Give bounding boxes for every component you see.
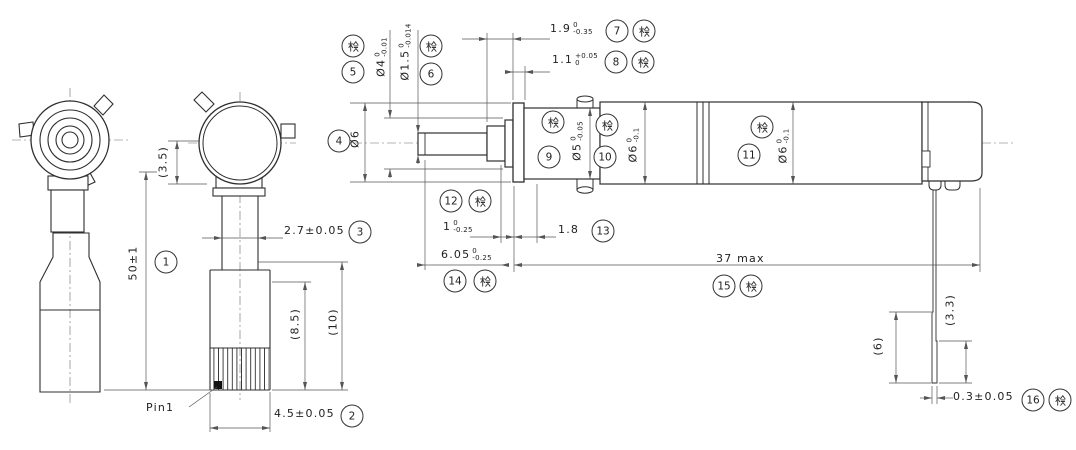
dim-5-tolerance: 0-0.01: [375, 37, 388, 57]
inspection-kanji-icon: [474, 195, 486, 207]
inspection-balloon-11: [751, 116, 774, 139]
balloon-2: 2: [341, 405, 364, 428]
balloon-12: 12: [440, 190, 463, 213]
front-view: [19, 95, 113, 392]
bottom-pin: [577, 179, 593, 193]
dim-10-value: Ø6: [627, 144, 640, 162]
inspection-kanji-icon: [638, 25, 650, 37]
inspection-kanji-icon: [756, 121, 768, 133]
dim-10-text: Ø6 0-0.1: [627, 128, 640, 163]
dim-11-tolerance: 0-0.1: [777, 129, 790, 144]
dim-6-tol-lower: -0.014: [405, 23, 412, 47]
dim-8-value: 1.1: [552, 53, 573, 66]
dim-6-tolerance: 0-0.014: [399, 23, 412, 47]
lead-pin: [932, 190, 937, 383]
inspection-balloon-5: [342, 35, 365, 58]
ref-10-text: (10): [327, 308, 340, 335]
dim-14-text: 6.05 0-0.25: [441, 248, 492, 261]
balloon-14: 14: [444, 270, 467, 293]
dim-14-value: 6.05: [441, 248, 470, 261]
balloon-8: 8: [605, 51, 628, 74]
balloon-5: 5: [342, 61, 365, 84]
collar-1: [487, 126, 505, 161]
dim-3-text: 2.7±0.05: [284, 224, 345, 237]
front-stem: [51, 190, 84, 232]
balloon-4: 4: [328, 130, 351, 153]
dim-12-tol-lower: -0.25: [453, 227, 473, 234]
side-tab-right: [281, 124, 295, 138]
dim-7-tolerance: 0-0.35: [573, 22, 593, 35]
engineering-drawing: 1.9 0-0.35 1.1 +0.050 1 0-0.25 1.8 6.05 …: [0, 0, 1076, 450]
dim-5-value: Ø4: [375, 59, 388, 77]
body-section-b: [600, 102, 922, 184]
side-view: [194, 92, 295, 390]
ref-3-3-text: (3.3): [944, 294, 957, 326]
dim-14-tol-lower: -0.25: [472, 255, 492, 262]
dim-2-text: 4.5±0.05: [274, 407, 335, 420]
balloon-7: 7: [606, 20, 629, 43]
ref-10-value: (10): [327, 308, 340, 335]
collar-2: [505, 120, 513, 167]
dim-12-tolerance: 0-0.25: [453, 220, 473, 233]
dim-10-tol-lower: -0.1: [633, 128, 640, 143]
shaft: [418, 133, 487, 155]
dim-2-value: 4.5±0.05: [274, 407, 335, 420]
balloon-11: 11: [738, 144, 761, 167]
dim-13-text: 1.8: [558, 223, 579, 236]
dim-8-text: 1.1 +0.050: [552, 53, 598, 66]
ref-3-5-value: (3.5): [157, 146, 170, 178]
dim-13-value: 1.8: [558, 223, 579, 236]
inspection-balloon-6: [420, 35, 443, 58]
ref-3-3-value: (3.3): [944, 294, 957, 326]
side-base-lip: [213, 188, 265, 196]
cap-tab-1: [929, 181, 941, 190]
dim-1-text: 50±1: [127, 245, 140, 280]
dim-14-tolerance: 0-0.25: [472, 248, 492, 261]
pin1-label: Pin1: [146, 401, 174, 414]
dim-8-tol-lower: 0: [575, 60, 580, 67]
dim-12-value: 1: [443, 220, 451, 233]
ref-3-5-text: (3.5): [157, 146, 170, 178]
inspection-balloon-9: [542, 111, 565, 134]
inspection-balloon-10: [596, 114, 619, 137]
balloon-15: 15: [713, 275, 736, 298]
inspection-kanji-icon: [637, 56, 649, 68]
end-cap: [922, 102, 982, 181]
dim-15-text: 37 max: [716, 252, 765, 265]
pin1-marker: [214, 381, 222, 389]
dim-10-tolerance: 0-0.1: [627, 128, 640, 143]
end-cap-notch: [922, 151, 930, 167]
ref-6-value: (6): [872, 336, 885, 355]
balloon-9: 9: [538, 146, 561, 169]
dim-5-tol-lower: -0.01: [381, 37, 388, 57]
balloon-13: 13: [592, 220, 615, 243]
dim-5-text: Ø4 0-0.01: [375, 37, 388, 77]
inspection-kanji-icon: [547, 116, 559, 128]
dim-6-text: Ø1.5 0-0.014: [399, 23, 412, 80]
dim-3-value: 2.7±0.05: [284, 224, 345, 237]
inspection-balloon-16: [1049, 389, 1072, 412]
balloon-10: 10: [594, 146, 617, 169]
dim-12-text: 1 0-0.25: [443, 220, 473, 233]
pin1-label-text: Pin1: [146, 401, 174, 414]
side-tab-upper-left: [194, 92, 214, 112]
inspection-kanji-icon: [479, 275, 491, 287]
top-pin: [577, 96, 593, 108]
flange: [513, 103, 524, 182]
dim-9-value: Ø5: [571, 143, 584, 161]
inspection-kanji-icon: [745, 280, 757, 292]
inspection-kanji-icon: [601, 119, 613, 131]
inspection-balloon-15: [740, 275, 763, 298]
balloon-3: 3: [349, 221, 372, 244]
dim-8-tolerance: +0.050: [575, 53, 598, 66]
inspection-balloon-8: [632, 51, 655, 74]
dim-11-tol-lower: -0.1: [783, 129, 790, 144]
front-outer-circle: [31, 101, 109, 179]
dim-16-text: 0.3±0.05: [953, 390, 1014, 403]
drawing-canvas: [0, 0, 1076, 450]
balloon-16: 16: [1022, 389, 1045, 412]
dim-7-text: 1.9 0-0.35: [550, 22, 593, 35]
inspection-kanji-icon: [347, 40, 359, 52]
balloon-1: 1: [155, 251, 178, 274]
dim-1-value: 50±1: [127, 245, 140, 280]
dim-11-value: Ø6: [777, 145, 790, 163]
dim-9-text: Ø5 0-0.05: [571, 121, 584, 161]
ref-6-text: (6): [872, 336, 885, 355]
dim-7-tol-lower: -0.35: [573, 29, 593, 36]
dim-11-text: Ø6 0-0.1: [777, 129, 790, 164]
dim-7-value: 1.9: [550, 22, 571, 35]
dim-15-value: 37 max: [716, 252, 765, 265]
inspection-kanji-icon: [425, 40, 437, 52]
dim-9-tol-lower: -0.05: [577, 121, 584, 141]
cap-tab-2: [945, 181, 960, 190]
dim-9-tolerance: 0-0.05: [571, 121, 584, 141]
dim-16-value: 0.3±0.05: [953, 390, 1014, 403]
main-view: [418, 96, 982, 383]
inspection-balloon-14: [474, 270, 497, 293]
ref-8-5-value: (8.5): [289, 308, 302, 340]
balloon-6: 6: [420, 63, 443, 86]
inspection-kanji-icon: [1054, 394, 1066, 406]
side-head-circle: [199, 102, 281, 184]
ref-8-5-text: (8.5): [289, 308, 302, 340]
inspection-balloon-12: [469, 190, 492, 213]
dim-6-value: Ø1.5: [399, 50, 412, 81]
inspection-balloon-7: [633, 20, 656, 43]
